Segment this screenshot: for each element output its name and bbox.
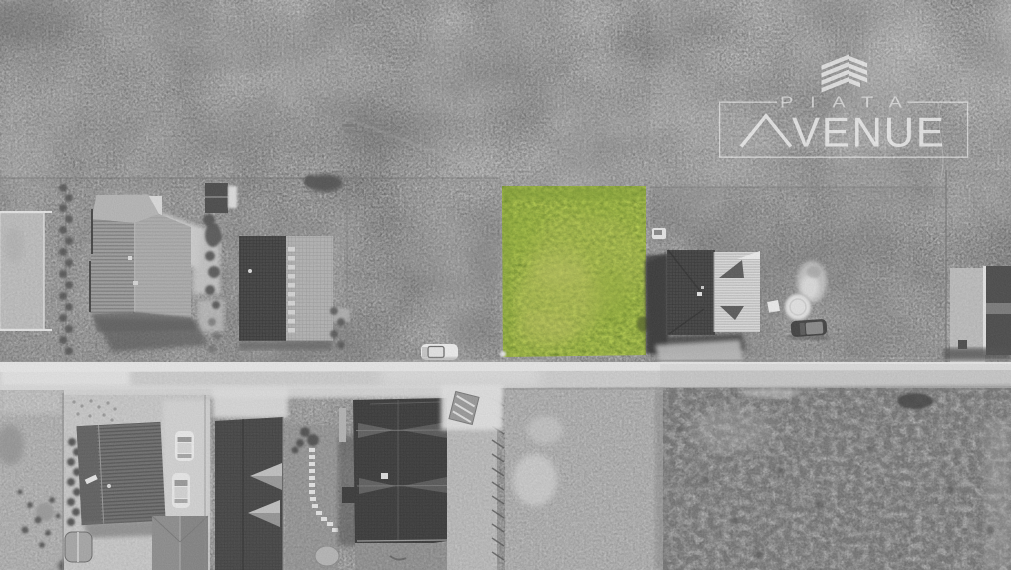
svg-text:VENUE: VENUE bbox=[792, 109, 946, 156]
